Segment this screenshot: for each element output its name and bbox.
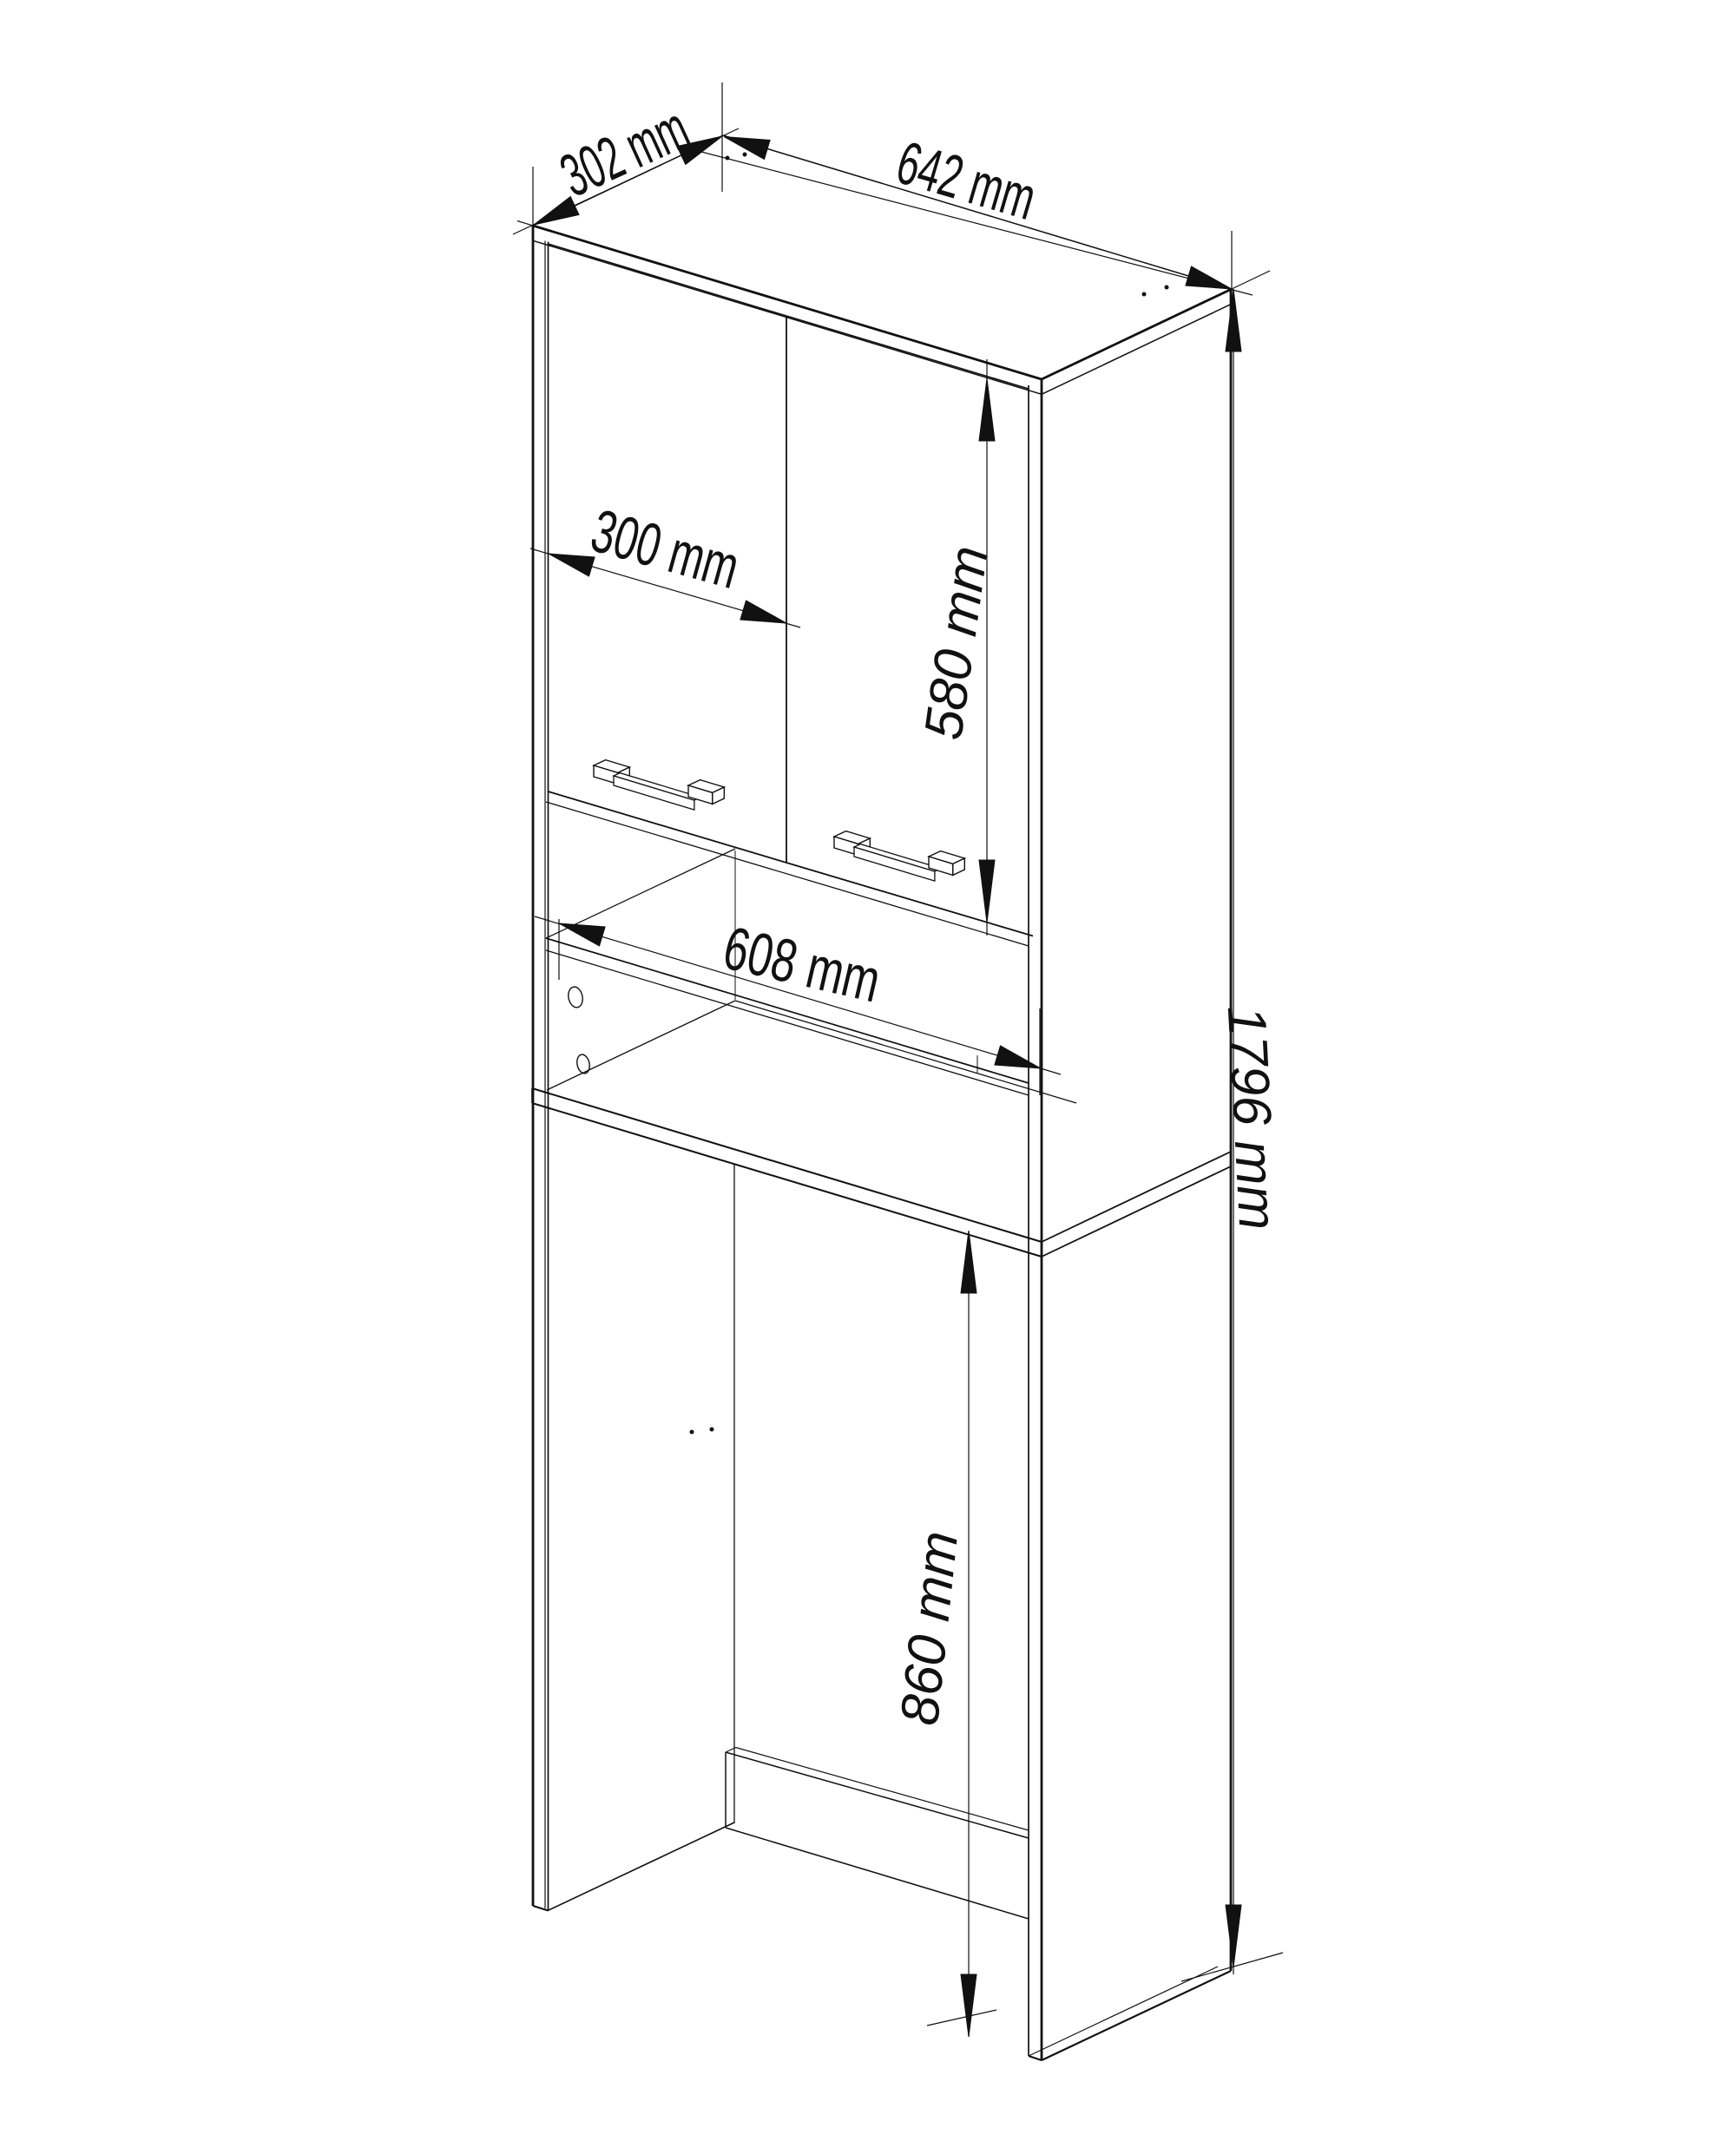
svg-text:1796 mm: 1796 mm (1216, 1004, 1287, 1231)
